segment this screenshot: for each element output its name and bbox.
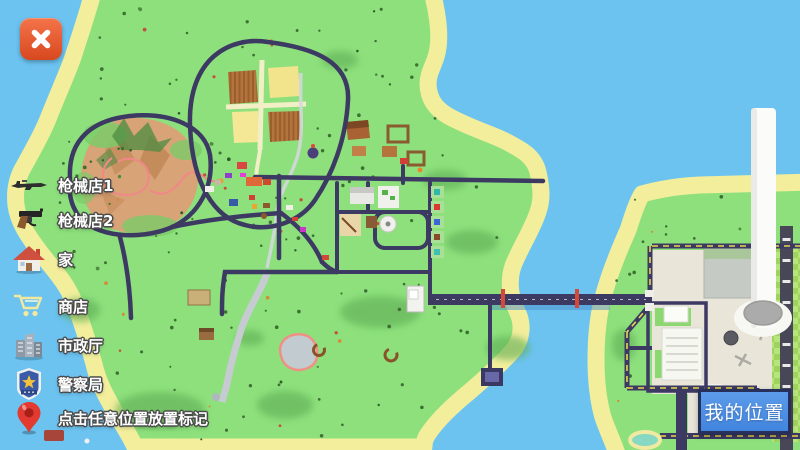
- my-location-button[interactable]: 我的位置: [698, 389, 791, 434]
- legend-label: 市政厅: [58, 335, 103, 356]
- cart-icon: [8, 292, 50, 320]
- pistol-icon: [8, 208, 50, 232]
- map-canvas[interactable]: [0, 0, 800, 450]
- city-hall-icon: [8, 329, 50, 361]
- rifle-icon: [8, 177, 50, 193]
- legend-item-gunshop2: 枪械店2: [8, 202, 113, 238]
- legend-item-shop: 商店: [8, 288, 88, 324]
- legend-item-city-hall: 市政厅: [8, 327, 103, 363]
- legend-item-gunshop1: 枪械店1: [8, 167, 113, 203]
- legend-label: 家: [58, 249, 73, 270]
- legend-label: 点击任意位置放置标记: [58, 408, 208, 429]
- game-map-screen: 枪械店1 枪械店2: [0, 0, 800, 450]
- legend-item-home: 家: [8, 241, 73, 277]
- home-icon: [8, 244, 50, 274]
- legend-label: 警察局: [58, 374, 103, 395]
- x-icon: [24, 22, 58, 56]
- police-station-building: [481, 368, 503, 386]
- legend-label: 枪械店1: [58, 175, 113, 196]
- legend-label: 枪械店2: [58, 210, 113, 231]
- map-pin-icon: [8, 401, 50, 435]
- legend-label: 商店: [58, 296, 88, 317]
- police-badge-icon: [8, 367, 50, 401]
- legend-item-place-marker: 点击任意位置放置标记: [8, 400, 208, 436]
- gas-station-building: [407, 286, 424, 312]
- close-button[interactable]: [20, 18, 62, 60]
- legend-item-police: 警察局: [8, 366, 103, 402]
